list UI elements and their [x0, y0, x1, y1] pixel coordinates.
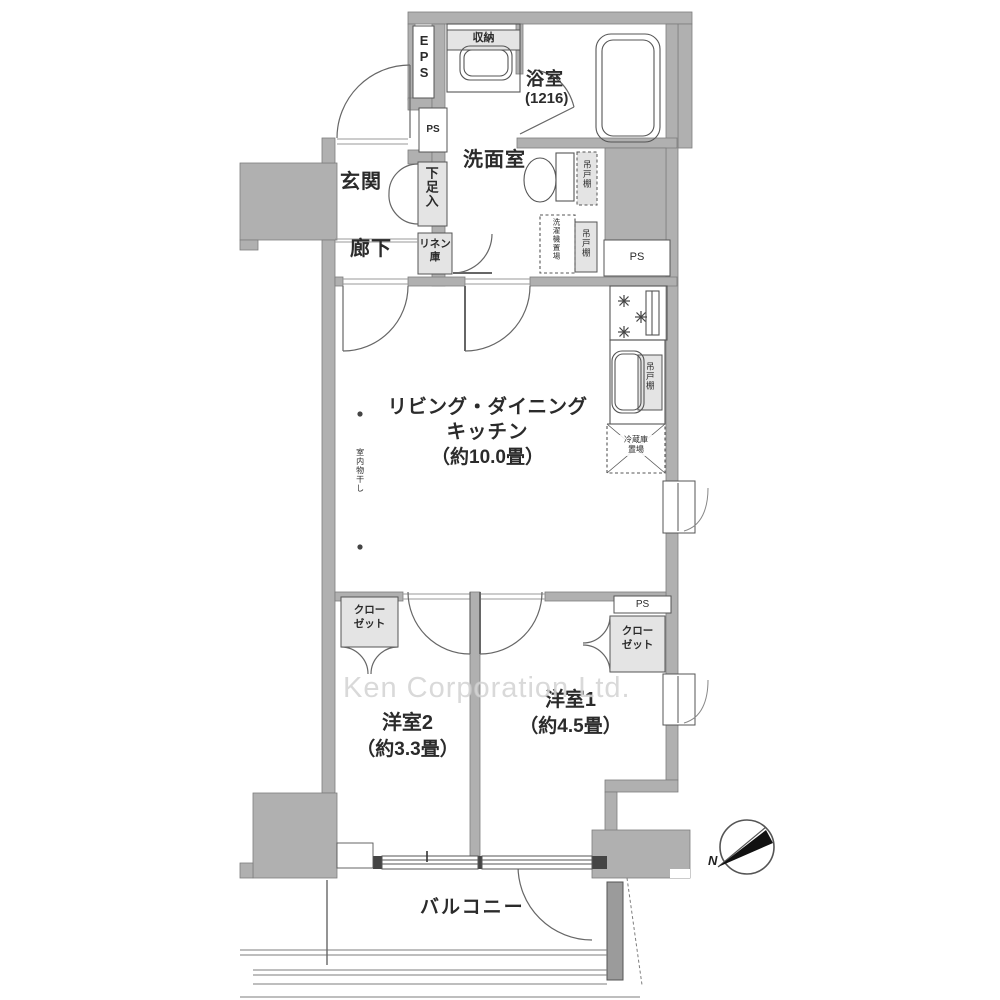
shaft-boxes: [413, 26, 671, 613]
floorplan-page: 玄関 下足入 EPS PS 廊下 リネン 庫 洗面室 浴室 (1216) 収納 …: [0, 0, 1000, 1000]
watermark: Ken Corporation Ltd.: [343, 671, 631, 706]
compass-icon: [718, 820, 774, 874]
fixture-label-reizoko: 冷蔵庫 置場: [616, 435, 656, 456]
fixture-label-sentakuki: 洗濯機置場: [552, 218, 561, 261]
fixture-label-linen: リネン 庫: [418, 238, 452, 264]
fixture-boxes: [341, 30, 665, 672]
room-label-genkan: 玄関: [340, 170, 382, 194]
fixture-label-tsuridana-laundry: 吊戸棚: [581, 229, 591, 258]
fixture-label-shuno: 収納: [447, 32, 520, 45]
room-label-balcony: バルコニー: [420, 897, 525, 920]
burner-icons: [618, 295, 647, 338]
compass-north-label: N: [708, 853, 717, 869]
room-label-ldk: リビング・ダイニング キッチン （約10.0畳）: [380, 395, 595, 470]
shaft-label-eps: EPS: [416, 33, 432, 81]
room-label-bath-size: (1216): [525, 90, 568, 108]
room-label-senmen: 洗面室: [463, 148, 526, 172]
room-label-room2: 洋室2 （約3.3畳）: [345, 710, 470, 763]
toilet-icon: [524, 158, 556, 202]
shaft-label-ps-bottom: PS: [614, 596, 671, 613]
room-label-bath: 浴室: [526, 69, 564, 91]
balcony-railing: [240, 878, 642, 997]
room-label-rouka: 廊下: [350, 237, 392, 261]
bathtub-icon: [596, 34, 660, 142]
fixture-label-closet-room1: クロー ゼット: [610, 625, 665, 652]
fixture-label-tsuridana-kitchen: 吊戸棚: [645, 362, 655, 391]
fixture-label-shoebox: 下足入: [423, 166, 439, 208]
shaft-label-ps-top: PS: [419, 108, 447, 152]
fixture-label-closet-room2: クロー ゼット: [341, 604, 398, 631]
shaft-label-ps-right: PS: [604, 240, 670, 276]
label-monohoshi: 室内物干し: [355, 448, 365, 493]
fixture-label-tsuridana-toilet: 吊戸棚: [582, 160, 592, 189]
toilet-tank-icon: [556, 153, 574, 201]
